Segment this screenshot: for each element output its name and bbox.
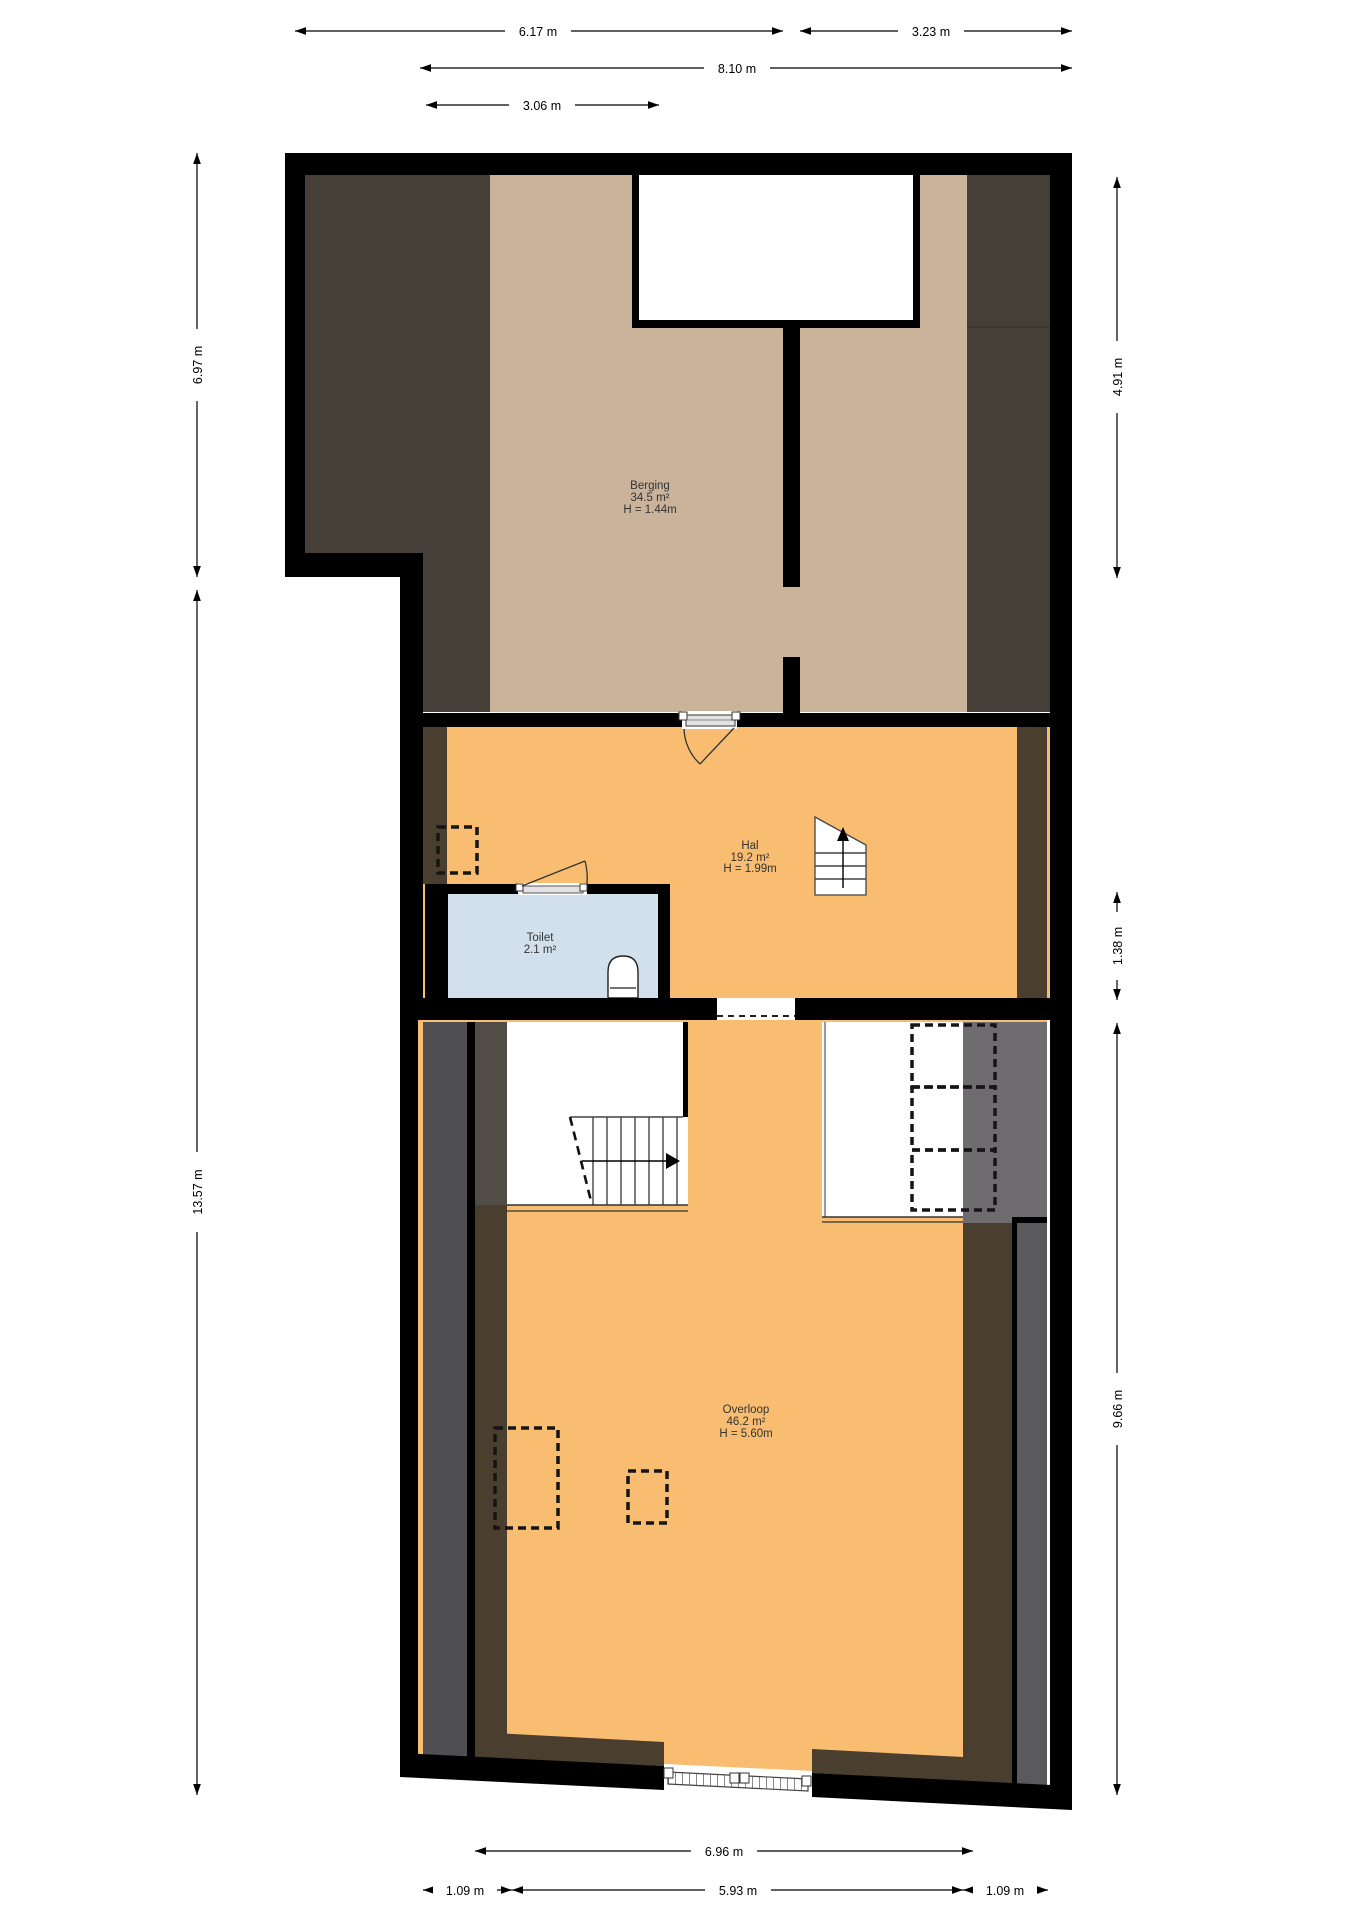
dim-bottom-left: 1.09 m — [446, 1884, 484, 1898]
berging-inner-wall-lower — [783, 657, 800, 713]
void-wall-right — [913, 175, 920, 328]
dim-left-upper-group: 6.97 m — [188, 329, 206, 401]
floor-plan-page: Berging 34.5 m² H = 1.44m — [0, 0, 1358, 1920]
stair-landing — [507, 1022, 688, 1205]
overloop-strip-grey-right — [1017, 1223, 1047, 1786]
wall-left-jog — [285, 553, 420, 577]
dim-right-lower-group: 9.66 m — [1108, 1373, 1126, 1445]
berging-area: 34.5 m² — [631, 492, 670, 504]
hal-top-wall-left — [400, 713, 682, 727]
closet-grey-zone — [963, 1022, 1047, 1223]
overloop-height: H = 5.60m — [719, 1428, 772, 1440]
void-wall-left — [632, 175, 639, 328]
overloop-label: Overloop — [723, 1404, 770, 1416]
sill-mullion-1 — [730, 1773, 739, 1783]
hal-height: H = 1.99m — [723, 863, 776, 875]
overloop-strip-brown-right — [963, 1223, 1012, 1784]
toilet-wall-top-right — [587, 884, 670, 894]
room-toilet: Toilet 2.1 m² — [425, 861, 670, 1020]
sill-jamb-left — [664, 1768, 673, 1778]
dim-left-upper: 6.97 m — [191, 346, 205, 384]
dim-right-middle-group: 1.38 m — [1108, 912, 1126, 980]
wall-top — [285, 153, 1072, 175]
dim-right-middle: 1.38 m — [1111, 927, 1125, 965]
dim-total-width: 8.10 m — [718, 62, 756, 76]
overloop-strip-brown-left — [475, 1205, 507, 1757]
overloop-stairs — [507, 1022, 688, 1211]
hal-overloop-wall — [400, 998, 1072, 1020]
sill-mullion-2 — [740, 1773, 749, 1783]
berging-height: H = 1.44m — [623, 504, 676, 516]
berging-inner-wall-upper — [783, 328, 800, 587]
berging-label: Berging — [630, 480, 670, 492]
stair-side-wall — [683, 1022, 688, 1117]
void-wall-bottom — [632, 320, 920, 328]
strip-corner-black — [1012, 1217, 1047, 1223]
dim-right-lower: 9.66 m — [1111, 1390, 1125, 1428]
wall-left-upper — [285, 153, 305, 577]
dim-right-upper-group: 4.91 m — [1108, 341, 1126, 413]
door-jamb-left — [516, 884, 523, 891]
toilet-area: 2.1 m² — [524, 944, 557, 956]
closet-white — [822, 1022, 963, 1217]
door-slab — [523, 886, 583, 893]
overloop-area: 46.2 m² — [727, 1416, 766, 1428]
overloop-closets — [822, 1022, 1047, 1223]
strip-divider-left — [467, 1022, 475, 1759]
overloop-strip-grey-left — [423, 1022, 467, 1758]
toilet-label: Toilet — [527, 932, 555, 944]
dim-bottom-middle: 5.93 m — [719, 1884, 757, 1898]
toilet-fixture-icon — [608, 956, 638, 998]
door-jamb-right — [732, 712, 740, 720]
dim-stair-width: 3.06 m — [523, 99, 561, 113]
wall-right — [1050, 153, 1072, 1798]
dim-bottom-right: 1.09 m — [986, 1884, 1024, 1898]
void-cutout — [638, 175, 913, 320]
overloop-strip-greybrown — [475, 1022, 507, 1205]
strip-divider-right — [1012, 1223, 1017, 1785]
door-jamb-left — [679, 712, 687, 720]
dim-bottom-width: 6.96 m — [705, 1845, 743, 1859]
hal-strip-right — [1017, 727, 1047, 1002]
hal-top-wall-right — [737, 713, 1072, 727]
dim-left-lower: 13.57 m — [191, 1169, 205, 1214]
room-overloop: Overloop 46.2 m² H = 5.60m — [418, 1020, 1047, 1788]
hal-label: Hal — [741, 840, 758, 852]
dim-right-upper: 4.91 m — [1111, 358, 1125, 396]
dim-top-left-width: 6.17 m — [519, 25, 557, 39]
dim-left-lower-group: 13.57 m — [188, 1152, 206, 1232]
hal-strip-left — [423, 727, 447, 884]
sill-jamb-right — [802, 1776, 811, 1786]
floor-plan-svg: Berging 34.5 m² H = 1.44m — [0, 0, 1358, 1920]
dim-top-right-width: 3.23 m — [912, 25, 950, 39]
door-jamb-right — [580, 884, 587, 891]
